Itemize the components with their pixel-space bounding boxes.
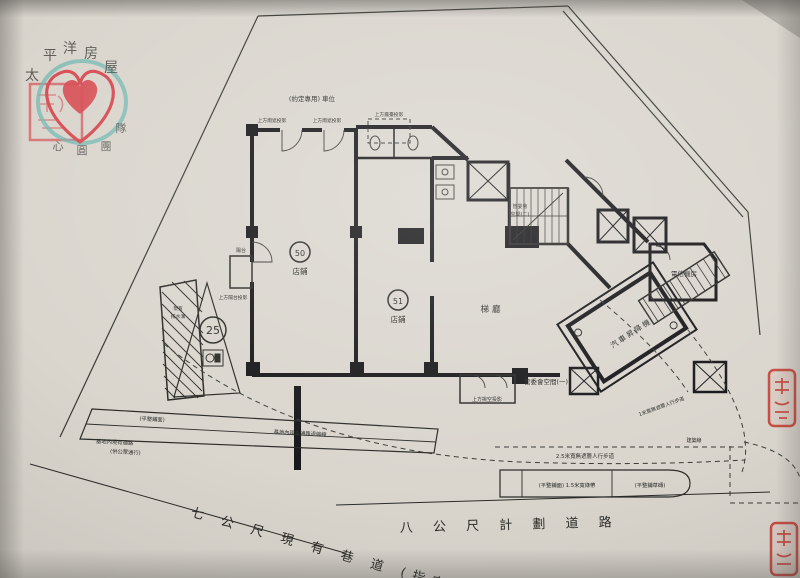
management-space-1-label: 管委會空間(一) bbox=[524, 377, 568, 386]
boundary-diagonal-outer bbox=[568, 6, 748, 212]
brand-char: 房 bbox=[84, 46, 98, 62]
green-strip-label: (平整鋪面) 1.5米寬綠帶 bbox=[539, 481, 596, 489]
paving-note: (平整鋪面) bbox=[139, 414, 165, 423]
toilet-fixtures bbox=[370, 136, 454, 199]
red-seal-bottom-right bbox=[771, 523, 797, 575]
hydrant-symbol-icon bbox=[203, 350, 223, 366]
terrace-projection-label: 上方露臺投影 bbox=[375, 111, 404, 118]
management-space-2-label: 管委會 bbox=[512, 203, 527, 210]
walkway-1m-label: 1米寬無遮簷人行步道 bbox=[638, 395, 686, 418]
balcony-label: 陽台 bbox=[236, 247, 246, 254]
shop-50-number: 50 bbox=[295, 249, 305, 258]
site-plan-drawing: 太 平 洋 房 屋 心 圓 團 隊 bbox=[0, 0, 800, 578]
management-space-2: 管委會 空間(二) bbox=[511, 203, 530, 218]
plot-number: 25 bbox=[206, 324, 220, 337]
shop-50: 50 店鋪 bbox=[290, 242, 310, 276]
wall-corner-diagonal bbox=[432, 127, 468, 160]
site-boundary bbox=[60, 6, 760, 437]
building-line-label: 建築線 bbox=[686, 437, 701, 444]
door-arc bbox=[324, 130, 344, 151]
building-walls bbox=[252, 127, 648, 375]
green-strip-bar: (平整鋪面) 1.5米寬綠帶 (平整鋪草磚) bbox=[500, 470, 690, 497]
floor-plan-photo: 太 平 洋 房 屋 心 圓 團 隊 bbox=[0, 0, 800, 578]
brand-char: 洋 bbox=[63, 41, 77, 57]
access-note: 基地內現有通路 bbox=[96, 437, 134, 447]
void-projection-label: 上方挑空投影 bbox=[472, 396, 502, 403]
parking-note: (約定專用) 車位 bbox=[289, 94, 336, 103]
brand-char: 平 bbox=[43, 48, 57, 64]
balcony-projection-note: 上方陽台投影 bbox=[219, 294, 248, 301]
door-arc bbox=[282, 130, 302, 151]
grass-brick-label: (平整鋪草磚) bbox=[635, 481, 666, 489]
shop-51: 51 店鋪 bbox=[388, 290, 408, 324]
canopy-note-1: 上方雨遮投影 bbox=[258, 117, 287, 124]
shop-51-number: 51 bbox=[393, 297, 403, 306]
balcony-room: 陽台 bbox=[230, 247, 252, 288]
hatched-strip bbox=[160, 280, 204, 400]
road-8m-label: 八 公 尺 計 劃 道 路 bbox=[400, 514, 620, 536]
photo-corner-shadow bbox=[742, 0, 800, 38]
access-note: (供公眾通行) bbox=[110, 447, 141, 457]
car-lift-platform: 汽車昇降機 bbox=[557, 262, 696, 391]
management-space-2-label: 空間(二) bbox=[511, 211, 530, 218]
slogan-char: 隊 bbox=[116, 121, 127, 135]
car-lift-label: 汽車昇降機 bbox=[608, 316, 653, 350]
existing-access-area: (平整鋪面) 基地內現有通路退縮線 基地內現有通路 (供公眾通行) bbox=[80, 409, 438, 457]
shop-50-label: 店鋪 bbox=[293, 266, 308, 276]
brand-char: 太 bbox=[25, 68, 39, 84]
door-arc bbox=[252, 242, 272, 262]
red-seal-right bbox=[769, 370, 795, 426]
ditch-note: 現有 bbox=[173, 305, 183, 312]
brand-char: 屋 bbox=[104, 60, 118, 76]
realty-watermark-logo: 太 平 洋 房 屋 心 圓 團 隊 bbox=[25, 41, 127, 157]
lobby-label: 梯廳 bbox=[480, 304, 503, 315]
slogan-char: 團 bbox=[101, 140, 112, 153]
slogan-char: 心 bbox=[53, 140, 64, 153]
lane-7m-label: 七 公 尺 現 有 巷 道 (指定) bbox=[189, 505, 464, 578]
door-swings bbox=[252, 130, 670, 388]
wall-stub-to-road bbox=[294, 386, 301, 470]
ditch-note: 排水溝 bbox=[171, 313, 186, 320]
wall-northeast-diagonal bbox=[566, 160, 648, 242]
slogan-char: 圓 bbox=[77, 144, 88, 157]
shop-51-label: 店鋪 bbox=[391, 314, 406, 324]
roads: 七 公 尺 現 有 巷 道 (指定) 八 公 尺 計 劃 道 路 bbox=[30, 464, 770, 578]
canopy-note-2: 上方雨遮投影 bbox=[313, 117, 342, 124]
walkway-2-5m-label: 2.5米寬無遮簷人行步道 bbox=[556, 452, 615, 460]
